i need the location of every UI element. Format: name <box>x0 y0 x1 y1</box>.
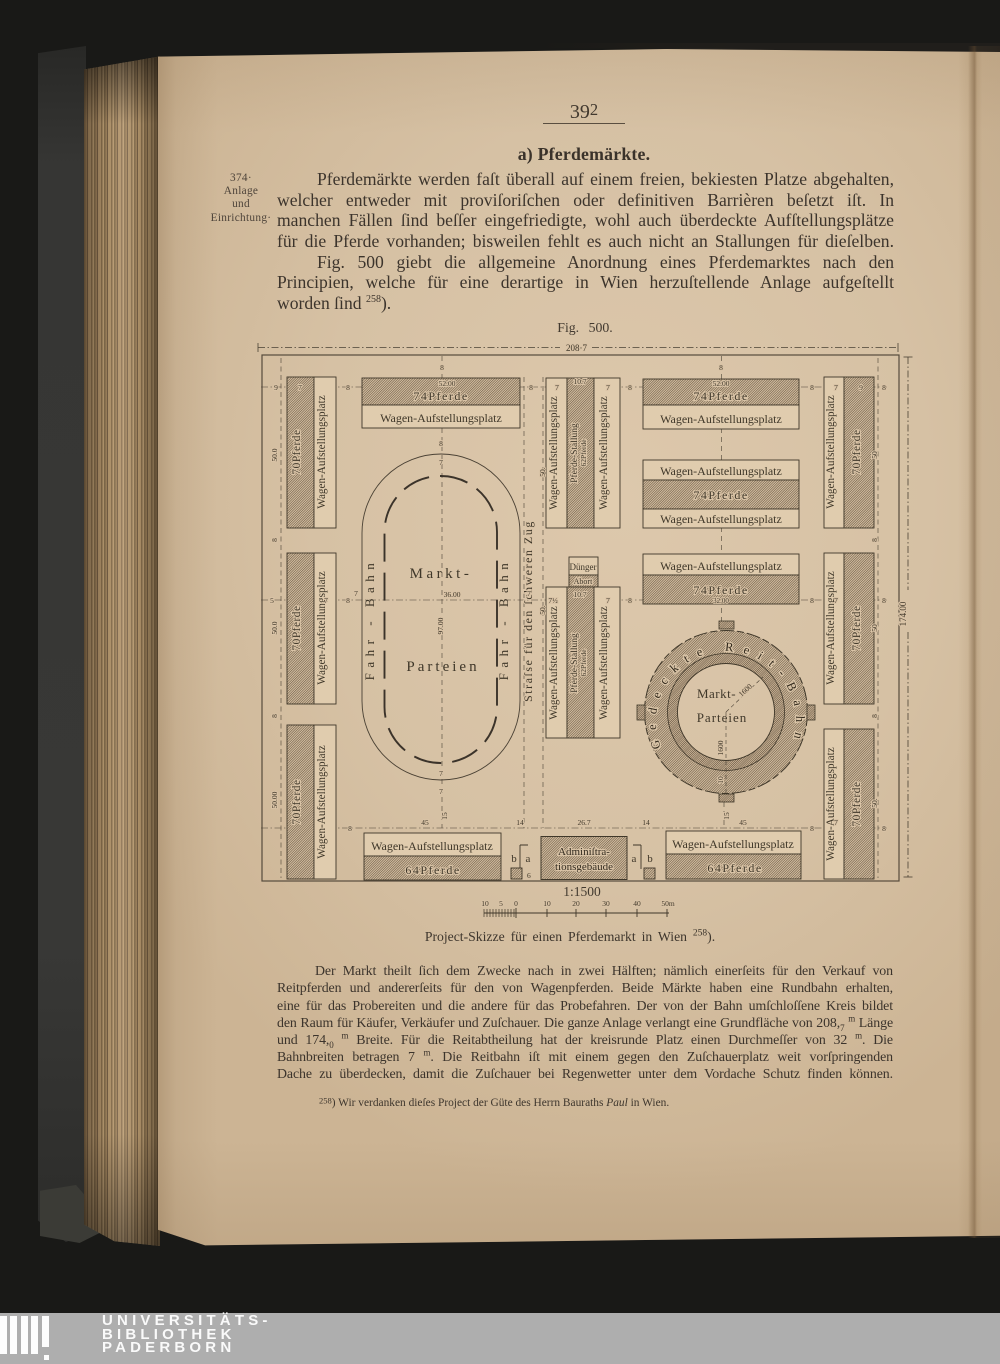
svg-text:8: 8 <box>870 714 879 718</box>
svg-text:8: 8 <box>270 714 279 718</box>
svg-text:Wagen-Aufstellungsplatz: Wagen-Aufstellungsplatz <box>825 571 837 684</box>
svg-text:15: 15 <box>722 812 731 820</box>
svg-text:50.: 50. <box>870 798 879 808</box>
svg-text:50m: 50m <box>661 899 675 908</box>
svg-text:10.7: 10.7 <box>573 377 586 386</box>
svg-text:Wagen-Aufstellungsplatz: Wagen-Aufstellungsplatz <box>371 839 493 853</box>
svg-text:7: 7 <box>324 596 328 605</box>
svg-text:8: 8 <box>719 363 723 372</box>
svg-text:64Pferde: 64Pferde <box>405 863 460 877</box>
svg-text:tionsgebäude: tionsgebäude <box>555 861 613 873</box>
svg-text:10: 10 <box>716 776 725 784</box>
svg-text:7: 7 <box>606 596 610 605</box>
svg-text:Wagen-Aufstellungsplatz: Wagen-Aufstellungsplatz <box>316 745 328 858</box>
svg-text:Fahr - Bahn: Fahr - Bahn <box>496 558 511 681</box>
svg-text:14: 14 <box>642 818 650 827</box>
svg-text:Parteien: Parteien <box>697 710 748 725</box>
svg-text:8: 8 <box>529 383 533 392</box>
svg-text:Wagen-Aufstellungsplatz: Wagen-Aufstellungsplatz <box>380 411 502 425</box>
svg-text:Wagen-Aufstellungsplatz: Wagen-Aufstellungsplatz <box>598 396 610 509</box>
svg-text:Adminiſtra-: Adminiſtra- <box>558 846 610 858</box>
svg-text:Markt-: Markt- <box>697 686 736 701</box>
svg-text:7: 7 <box>606 383 610 392</box>
svg-text:9: 9 <box>859 383 863 392</box>
svg-text:36.00: 36.00 <box>444 590 461 599</box>
svg-text:50.: 50. <box>538 467 547 477</box>
svg-text:26.7: 26.7 <box>577 818 590 827</box>
svg-text:15: 15 <box>440 812 449 820</box>
svg-text:8: 8 <box>870 538 879 542</box>
svg-text:a: a <box>526 853 531 865</box>
svg-text:7: 7 <box>527 589 531 598</box>
svg-text:8: 8 <box>882 383 886 392</box>
svg-text:8: 8 <box>810 383 814 392</box>
svg-text:5: 5 <box>270 596 274 605</box>
svg-text:70Pferde: 70Pferde <box>291 429 303 474</box>
svg-text:10: 10 <box>481 899 489 908</box>
svg-text:1600: 1600 <box>737 682 754 699</box>
svg-text:9: 9 <box>274 383 278 392</box>
svg-text:50.0: 50.0 <box>270 621 279 634</box>
svg-text:208·7: 208·7 <box>566 343 587 353</box>
svg-text:Wagen-Aufstellungsplatz: Wagen-Aufstellungsplatz <box>316 395 328 508</box>
svg-text:45: 45 <box>421 818 429 827</box>
svg-text:b: b <box>511 853 517 865</box>
svg-text:74Pferde: 74Pferde <box>693 583 748 597</box>
svg-text:7: 7 <box>834 818 838 827</box>
svg-text:40: 40 <box>633 899 641 908</box>
svg-text:Abort: Abort <box>574 577 593 586</box>
svg-text:7: 7 <box>439 458 443 467</box>
svg-text:Wagen-Aufstellungsplatz: Wagen-Aufstellungsplatz <box>660 412 782 426</box>
svg-text:74Pferde: 74Pferde <box>693 488 748 502</box>
svg-text:a: a <box>632 853 637 865</box>
svg-text:70Pferde: 70Pferde <box>291 605 303 650</box>
svg-text:b: b <box>647 853 653 865</box>
svg-text:8: 8 <box>346 596 350 605</box>
svg-text:8: 8 <box>270 538 279 542</box>
svg-text:64Pferde: 64Pferde <box>707 861 762 875</box>
svg-text:5: 5 <box>499 899 503 908</box>
svg-text:45: 45 <box>739 818 747 827</box>
svg-text:Wagen-Aufstellungsplatz: Wagen-Aufstellungsplatz <box>548 606 560 719</box>
svg-text:74Pferde: 74Pferde <box>413 389 468 403</box>
svg-text:0: 0 <box>514 899 518 908</box>
svg-text:50.0: 50.0 <box>270 448 279 461</box>
svg-text:Wagen-Aufstellungsplatz: Wagen-Aufstellungsplatz <box>672 837 794 851</box>
svg-text:14: 14 <box>516 818 524 827</box>
svg-text:Wagen-Aufstellungsplatz: Wagen-Aufstellungsplatz <box>660 464 782 478</box>
svg-text:97.00: 97.00 <box>436 617 445 634</box>
svg-text:7: 7 <box>834 383 838 392</box>
svg-text:10: 10 <box>543 899 551 908</box>
svg-text:8: 8 <box>346 383 350 392</box>
svg-text:62Pferde: 62Pferde <box>579 649 588 677</box>
svg-text:50.: 50. <box>538 605 547 615</box>
svg-text:8: 8 <box>440 363 444 372</box>
svg-text:7: 7 <box>439 769 443 778</box>
svg-text:1600: 1600 <box>716 740 725 755</box>
svg-text:30: 30 <box>602 899 610 908</box>
svg-text:52.00: 52.00 <box>713 379 730 388</box>
svg-text:70Pferde: 70Pferde <box>851 605 863 650</box>
svg-text:70Pferde: 70Pferde <box>291 779 303 824</box>
svg-text:6: 6 <box>527 871 531 880</box>
svg-text:8: 8 <box>810 596 814 605</box>
svg-text:20: 20 <box>572 899 580 908</box>
svg-text:7: 7 <box>354 589 358 598</box>
svg-text:Wagen-Aufstellungsplatz: Wagen-Aufstellungsplatz <box>316 571 328 684</box>
svg-text:70Pferde: 70Pferde <box>851 429 863 474</box>
svg-text:50: 50 <box>870 451 879 459</box>
svg-text:Wagen-Aufstellungsplatz: Wagen-Aufstellungsplatz <box>548 396 560 509</box>
svg-text:Parteien: Parteien <box>406 659 479 675</box>
svg-text:8: 8 <box>348 824 352 833</box>
svg-text:Wagen-Aufstellungsplatz: Wagen-Aufstellungsplatz <box>598 606 610 719</box>
svg-text:50: 50 <box>870 624 879 632</box>
svg-text:10.7: 10.7 <box>573 590 586 599</box>
svg-text:174.00: 174.00 <box>898 601 908 626</box>
svg-text:Fahr - Bahn: Fahr - Bahn <box>362 558 377 681</box>
svg-text:7: 7 <box>555 383 559 392</box>
svg-text:Dünger: Dünger <box>570 562 597 572</box>
svg-text:Wagen-Aufstellungsplatz: Wagen-Aufstellungsplatz <box>825 395 837 508</box>
svg-text:7½: 7½ <box>548 596 558 605</box>
svg-text:8: 8 <box>439 439 443 448</box>
svg-text:74Pferde: 74Pferde <box>693 389 748 403</box>
svg-text:70Pferde: 70Pferde <box>851 781 863 826</box>
svg-text:62Pferde: 62Pferde <box>579 439 588 467</box>
svg-text:50.00: 50.00 <box>270 791 279 808</box>
svg-text:7: 7 <box>298 383 302 392</box>
svg-text:8: 8 <box>810 824 814 833</box>
svg-text:32.00: 32.00 <box>713 597 729 605</box>
svg-text:Straſse für den ſchweren Zug: Straſse für den ſchweren Zug <box>521 520 535 702</box>
svg-text:7: 7 <box>439 787 443 796</box>
svg-text:8: 8 <box>628 596 632 605</box>
svg-text:Wagen-Aufstellungsplatz: Wagen-Aufstellungsplatz <box>660 559 782 573</box>
svg-text:Wagen-Aufstellungsplatz: Wagen-Aufstellungsplatz <box>660 512 782 526</box>
svg-text:Markt-: Markt- <box>410 566 473 582</box>
svg-text:8: 8 <box>628 383 632 392</box>
svg-text:8: 8 <box>882 824 886 833</box>
svg-text:7: 7 <box>834 596 838 605</box>
svg-text:8: 8 <box>882 596 886 605</box>
svg-text:52.00: 52.00 <box>439 379 456 388</box>
svg-text:Wagen-Aufstellungsplatz: Wagen-Aufstellungsplatz <box>825 747 837 860</box>
